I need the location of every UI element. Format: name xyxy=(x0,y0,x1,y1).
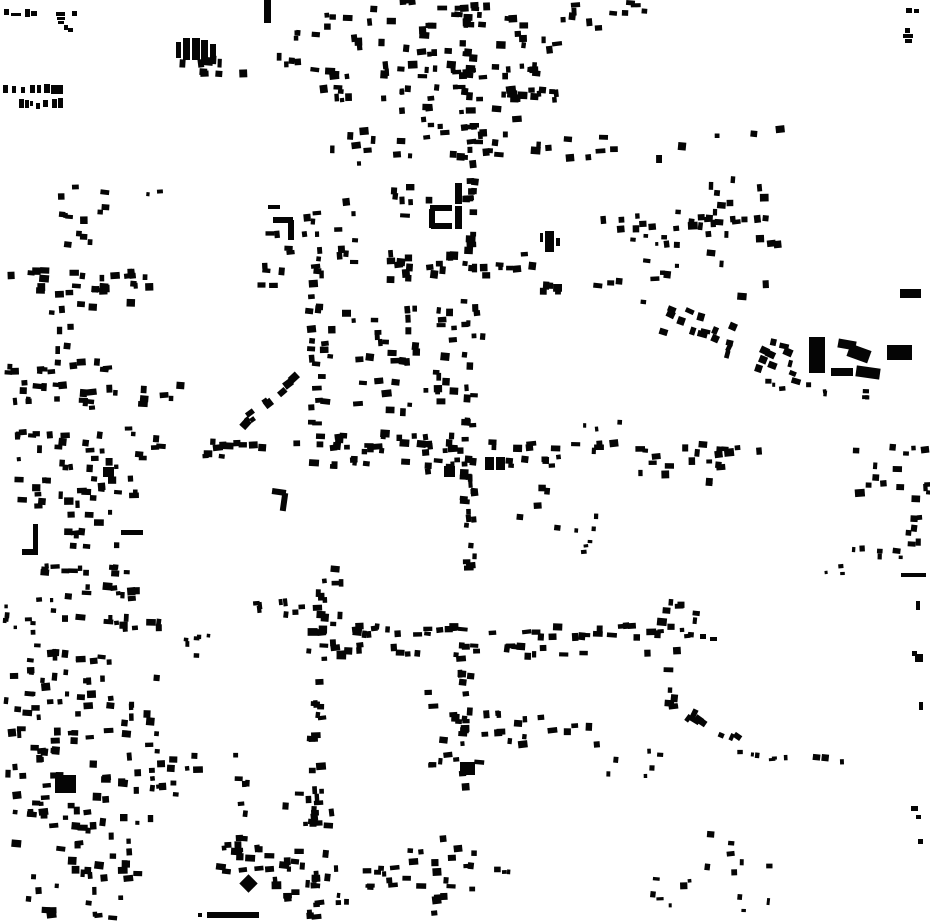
building xyxy=(311,732,321,738)
building xyxy=(294,58,301,65)
building xyxy=(311,218,316,224)
building xyxy=(559,652,568,656)
building xyxy=(865,395,869,399)
building xyxy=(673,226,679,232)
building xyxy=(316,433,325,439)
building xyxy=(367,886,373,890)
building xyxy=(85,584,90,590)
building xyxy=(892,548,900,554)
building xyxy=(916,815,921,819)
building xyxy=(552,97,557,103)
building xyxy=(464,523,469,528)
building xyxy=(68,28,73,32)
building xyxy=(85,900,91,905)
building xyxy=(466,235,476,242)
building xyxy=(682,444,688,451)
building xyxy=(81,489,91,495)
building xyxy=(135,821,139,825)
building xyxy=(423,627,432,632)
building xyxy=(129,269,134,275)
building xyxy=(34,492,41,497)
building xyxy=(65,691,69,696)
building xyxy=(114,465,118,470)
building xyxy=(674,242,680,248)
building xyxy=(536,141,541,148)
building xyxy=(57,85,63,94)
building xyxy=(344,899,349,905)
building xyxy=(303,822,308,826)
building xyxy=(439,835,446,842)
building xyxy=(549,89,555,94)
building xyxy=(264,853,274,859)
building xyxy=(840,572,845,575)
building xyxy=(408,61,418,69)
building xyxy=(387,276,395,283)
building xyxy=(482,272,490,278)
building xyxy=(106,385,112,393)
building xyxy=(644,774,648,778)
building xyxy=(140,395,149,402)
building xyxy=(324,13,329,18)
building xyxy=(57,699,62,705)
building xyxy=(443,448,448,453)
building xyxy=(39,802,44,806)
building xyxy=(321,613,330,622)
building xyxy=(405,315,411,323)
building xyxy=(243,810,248,817)
building xyxy=(41,795,50,800)
building xyxy=(407,848,413,853)
building xyxy=(391,379,400,386)
building xyxy=(41,367,48,372)
building xyxy=(85,735,94,740)
building xyxy=(309,355,315,363)
building xyxy=(547,727,557,734)
building xyxy=(471,516,477,522)
building xyxy=(269,283,278,288)
building xyxy=(709,182,714,190)
building xyxy=(308,628,318,636)
building xyxy=(419,32,429,39)
building xyxy=(87,690,96,698)
building xyxy=(66,290,74,296)
building xyxy=(236,853,244,860)
building xyxy=(109,833,114,840)
building xyxy=(724,231,728,238)
building xyxy=(322,578,327,583)
building xyxy=(436,398,445,404)
building xyxy=(72,866,80,874)
building xyxy=(824,571,827,575)
building xyxy=(653,877,660,881)
building xyxy=(150,785,156,792)
building xyxy=(302,231,308,237)
building xyxy=(294,36,299,41)
building xyxy=(184,638,189,642)
building xyxy=(512,265,521,273)
building xyxy=(424,67,429,73)
building xyxy=(450,461,454,468)
building xyxy=(388,250,393,258)
building xyxy=(521,252,528,257)
building xyxy=(185,641,189,647)
building xyxy=(321,341,329,347)
building xyxy=(13,810,18,815)
building xyxy=(52,673,58,681)
building xyxy=(50,564,59,569)
building xyxy=(439,266,446,274)
building xyxy=(438,124,443,129)
building xyxy=(381,389,392,397)
building xyxy=(873,462,878,469)
building xyxy=(635,213,640,219)
building xyxy=(356,642,364,648)
building xyxy=(462,261,468,266)
building xyxy=(878,554,882,560)
building xyxy=(480,333,486,340)
building xyxy=(344,74,349,80)
building xyxy=(405,85,411,92)
building xyxy=(362,449,368,455)
building xyxy=(159,783,167,791)
building xyxy=(433,65,438,72)
building xyxy=(506,85,517,93)
building xyxy=(320,347,329,354)
building xyxy=(298,604,305,609)
building xyxy=(838,564,843,569)
building xyxy=(405,327,411,334)
building xyxy=(58,193,65,200)
building xyxy=(94,861,104,870)
building xyxy=(880,480,887,487)
building xyxy=(77,358,86,365)
building xyxy=(668,687,673,693)
building xyxy=(371,136,376,144)
building xyxy=(640,300,646,305)
building xyxy=(11,839,21,847)
building xyxy=(183,38,190,60)
building xyxy=(523,716,528,723)
building xyxy=(58,438,67,446)
building xyxy=(133,489,138,496)
building xyxy=(21,380,27,386)
building xyxy=(911,806,918,811)
building xyxy=(556,238,560,246)
building xyxy=(124,614,129,622)
building xyxy=(470,195,475,200)
building xyxy=(83,809,91,815)
building xyxy=(27,667,35,674)
building xyxy=(118,778,125,786)
building xyxy=(233,440,240,447)
building xyxy=(540,645,547,651)
building xyxy=(457,85,466,89)
building xyxy=(638,470,642,476)
building xyxy=(704,217,712,223)
building xyxy=(492,139,499,146)
building xyxy=(121,719,128,726)
building xyxy=(316,256,321,261)
building xyxy=(37,85,41,93)
building xyxy=(334,865,338,872)
building xyxy=(396,650,405,656)
building xyxy=(306,912,314,919)
building xyxy=(668,599,673,606)
building xyxy=(295,791,304,795)
building xyxy=(131,432,136,437)
building xyxy=(442,378,450,386)
building xyxy=(55,346,60,354)
building xyxy=(55,883,59,888)
building xyxy=(89,760,97,767)
building xyxy=(122,730,132,738)
building xyxy=(680,882,688,889)
building xyxy=(51,738,60,744)
building xyxy=(665,463,674,469)
building xyxy=(278,599,282,605)
map-canvas xyxy=(0,0,930,924)
building xyxy=(159,392,168,398)
building xyxy=(56,772,64,778)
building xyxy=(353,401,363,407)
building xyxy=(532,651,536,657)
building xyxy=(103,285,110,293)
building xyxy=(201,40,208,60)
building xyxy=(730,216,736,223)
building xyxy=(460,469,469,476)
building xyxy=(370,6,377,13)
building xyxy=(52,99,57,108)
building xyxy=(565,154,574,162)
building xyxy=(257,606,262,614)
building xyxy=(649,225,653,230)
building xyxy=(55,291,64,298)
building xyxy=(146,717,155,726)
building xyxy=(434,385,442,392)
building xyxy=(342,310,351,317)
building xyxy=(448,254,453,261)
building xyxy=(315,712,320,718)
building xyxy=(25,100,29,108)
building xyxy=(366,631,372,638)
building xyxy=(426,264,434,270)
building xyxy=(347,132,353,140)
building xyxy=(122,860,130,868)
building xyxy=(428,123,434,128)
building xyxy=(459,771,466,777)
building xyxy=(489,630,497,635)
building xyxy=(108,915,117,920)
building xyxy=(207,634,211,638)
building xyxy=(714,190,720,196)
building xyxy=(176,42,181,58)
building xyxy=(541,456,547,462)
building xyxy=(116,591,121,595)
building xyxy=(321,657,327,661)
building xyxy=(428,23,437,29)
building xyxy=(58,21,64,24)
building xyxy=(69,362,77,369)
building xyxy=(470,2,478,9)
building xyxy=(14,477,23,483)
building xyxy=(350,260,358,264)
building xyxy=(593,283,602,289)
building xyxy=(13,398,18,406)
building xyxy=(312,877,321,882)
building xyxy=(106,702,114,709)
building xyxy=(216,863,226,871)
building xyxy=(553,284,562,292)
building xyxy=(204,450,213,457)
building xyxy=(355,356,363,362)
building xyxy=(564,136,573,142)
building xyxy=(34,643,41,647)
building xyxy=(423,434,429,441)
building xyxy=(403,44,410,52)
building xyxy=(265,231,274,235)
building xyxy=(840,759,844,764)
building xyxy=(314,871,319,875)
building xyxy=(25,617,32,621)
building xyxy=(716,464,725,471)
building xyxy=(19,773,26,779)
building xyxy=(36,103,40,109)
building xyxy=(338,89,344,94)
building xyxy=(100,675,105,681)
building xyxy=(41,383,47,391)
building xyxy=(468,474,473,481)
building xyxy=(58,98,63,108)
building xyxy=(741,217,747,223)
building xyxy=(120,592,125,599)
building xyxy=(643,258,651,263)
building xyxy=(464,247,473,255)
building xyxy=(11,13,21,16)
building xyxy=(317,247,322,254)
building xyxy=(15,432,20,439)
building xyxy=(609,11,617,16)
building xyxy=(407,403,412,407)
building xyxy=(505,458,513,465)
building xyxy=(560,17,565,23)
building xyxy=(397,66,405,72)
building xyxy=(698,222,703,230)
building xyxy=(47,369,55,374)
building xyxy=(238,801,245,806)
building xyxy=(22,709,32,716)
building xyxy=(698,441,707,448)
building xyxy=(571,2,581,7)
building xyxy=(94,913,103,918)
building xyxy=(469,887,475,892)
building xyxy=(923,484,928,491)
building xyxy=(207,912,259,918)
building xyxy=(363,461,370,467)
building xyxy=(75,840,84,846)
building xyxy=(466,514,472,522)
building xyxy=(114,490,122,495)
building xyxy=(717,202,726,209)
building xyxy=(306,648,311,653)
building xyxy=(492,443,497,450)
building xyxy=(910,515,918,522)
building xyxy=(571,723,578,728)
building xyxy=(351,456,358,462)
building xyxy=(437,323,446,327)
building xyxy=(439,736,448,743)
building xyxy=(284,894,292,902)
building xyxy=(438,317,447,323)
building xyxy=(7,364,12,370)
building xyxy=(508,463,514,468)
building xyxy=(288,220,294,240)
building xyxy=(219,454,225,459)
building xyxy=(307,325,317,333)
building xyxy=(724,448,735,457)
building xyxy=(319,643,328,648)
building xyxy=(103,467,114,477)
building xyxy=(462,437,469,442)
building xyxy=(467,707,473,715)
building xyxy=(470,643,478,647)
building xyxy=(467,862,474,869)
building xyxy=(46,911,56,919)
building xyxy=(664,240,670,247)
building xyxy=(154,731,159,736)
building xyxy=(382,871,386,876)
building xyxy=(388,882,398,887)
building xyxy=(644,650,651,657)
building xyxy=(236,835,243,841)
building xyxy=(292,609,298,615)
building xyxy=(331,461,337,469)
building xyxy=(12,764,18,771)
building xyxy=(145,742,153,747)
building xyxy=(413,348,421,355)
building xyxy=(905,39,912,43)
building xyxy=(169,756,177,762)
building xyxy=(54,444,62,449)
building xyxy=(887,345,912,360)
building xyxy=(462,51,470,57)
building xyxy=(446,309,453,317)
building xyxy=(179,59,185,67)
building xyxy=(449,337,458,343)
building xyxy=(334,433,342,439)
building xyxy=(823,390,827,396)
building xyxy=(618,624,624,629)
building xyxy=(483,2,490,10)
building xyxy=(141,386,147,394)
building xyxy=(474,140,483,145)
building xyxy=(143,710,150,718)
building xyxy=(78,825,88,831)
building xyxy=(492,64,500,70)
building xyxy=(514,720,523,727)
building xyxy=(483,710,490,718)
building xyxy=(336,900,341,905)
building xyxy=(63,213,68,218)
building xyxy=(272,881,282,889)
building xyxy=(108,696,114,702)
building xyxy=(134,769,141,776)
building xyxy=(462,352,468,358)
building xyxy=(340,98,345,103)
building xyxy=(528,87,535,92)
building xyxy=(86,388,97,395)
building xyxy=(446,884,455,889)
building xyxy=(53,649,60,656)
